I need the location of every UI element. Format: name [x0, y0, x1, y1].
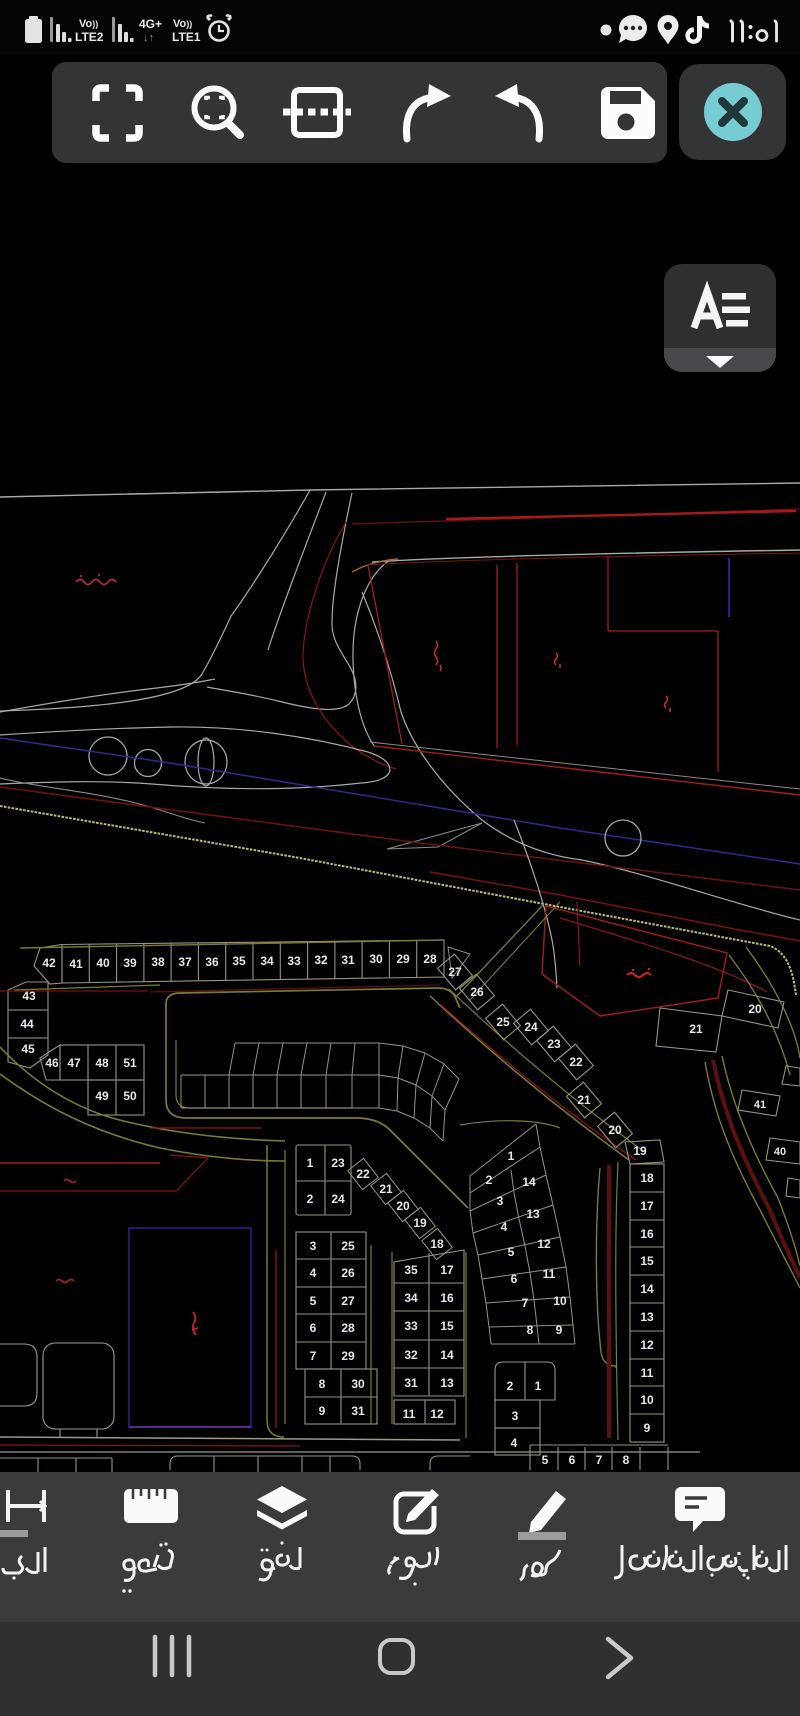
svg-text:7: 7 [596, 1453, 603, 1467]
svg-text:30: 30 [369, 952, 383, 966]
svg-text:4G+: 4G+ [139, 17, 162, 31]
svg-text:18: 18 [640, 1171, 654, 1185]
svg-text:17: 17 [640, 1199, 654, 1213]
svg-text:14: 14 [640, 1282, 654, 1296]
svg-text:20: 20 [396, 1199, 410, 1213]
svg-text:10: 10 [640, 1393, 654, 1407]
svg-text:39: 39 [123, 956, 137, 970]
svg-text:32: 32 [314, 953, 328, 967]
svg-text:7: 7 [522, 1296, 529, 1310]
svg-text:8: 8 [623, 1453, 630, 1467]
svg-text:31: 31 [351, 1404, 365, 1418]
svg-text:10: 10 [553, 1294, 567, 1308]
svg-text:↓↑: ↓↑ [143, 32, 154, 44]
svg-text:17: 17 [440, 1263, 454, 1277]
svg-text:40: 40 [774, 1146, 786, 1158]
svg-text:12: 12 [537, 1237, 551, 1251]
svg-text:28: 28 [423, 952, 437, 966]
svg-text:51: 51 [123, 1056, 137, 1070]
svg-text:29: 29 [341, 1349, 355, 1363]
svg-text:38: 38 [151, 955, 165, 969]
svg-text:16: 16 [640, 1227, 654, 1241]
svg-text:41: 41 [69, 957, 83, 971]
svg-text:9: 9 [644, 1421, 651, 1435]
svg-text:5: 5 [542, 1453, 549, 1467]
svg-text:12: 12 [640, 1338, 654, 1352]
svg-text:Vo)): Vo)) [79, 18, 98, 30]
svg-text:28: 28 [341, 1321, 355, 1335]
svg-text:6: 6 [569, 1453, 576, 1467]
svg-text:27: 27 [448, 965, 462, 979]
svg-text:26: 26 [341, 1266, 355, 1280]
svg-text:35: 35 [404, 1263, 418, 1277]
svg-text:35: 35 [232, 954, 246, 968]
svg-text:8: 8 [527, 1323, 534, 1337]
svg-text:32: 32 [404, 1348, 418, 1362]
svg-text:29: 29 [396, 952, 410, 966]
svg-text:24: 24 [331, 1192, 345, 1206]
svg-text:2: 2 [307, 1192, 314, 1206]
svg-text:11: 11 [403, 1407, 416, 1421]
svg-text:30: 30 [351, 1377, 365, 1391]
svg-text:3: 3 [497, 1194, 504, 1208]
svg-text:22: 22 [569, 1055, 583, 1069]
svg-text:4: 4 [501, 1220, 508, 1234]
svg-text:37: 37 [178, 955, 192, 969]
svg-text:9: 9 [319, 1404, 326, 1418]
svg-text:23: 23 [331, 1156, 345, 1170]
svg-text:21: 21 [577, 1093, 591, 1107]
svg-text:4: 4 [310, 1266, 317, 1280]
svg-text:13: 13 [440, 1376, 454, 1390]
svg-text:19: 19 [633, 1144, 647, 1158]
svg-text:33: 33 [287, 954, 301, 968]
svg-text:31: 31 [404, 1376, 418, 1390]
svg-text:46: 46 [45, 1056, 59, 1070]
svg-text:16: 16 [440, 1291, 454, 1305]
svg-text:7: 7 [310, 1349, 317, 1363]
svg-text:5: 5 [508, 1245, 515, 1259]
svg-text:42: 42 [42, 956, 56, 970]
svg-text:19: 19 [413, 1216, 427, 1230]
svg-text:45: 45 [21, 1042, 35, 1056]
svg-text:23: 23 [547, 1037, 561, 1051]
svg-text:25: 25 [496, 1015, 510, 1029]
svg-text:41: 41 [754, 1099, 766, 1111]
svg-text:18: 18 [430, 1237, 444, 1251]
svg-text:26: 26 [470, 985, 484, 999]
svg-text:LTE2: LTE2 [75, 30, 104, 44]
svg-text:11: 11 [641, 1366, 654, 1380]
svg-text:3: 3 [512, 1409, 519, 1423]
svg-text:9: 9 [556, 1323, 563, 1337]
svg-text:1: 1 [508, 1149, 515, 1163]
svg-text:LTE1: LTE1 [172, 30, 201, 44]
svg-text:14: 14 [522, 1175, 536, 1189]
svg-text:50: 50 [123, 1089, 137, 1103]
svg-text:33: 33 [404, 1319, 418, 1333]
svg-text:34: 34 [404, 1291, 418, 1305]
svg-text:6: 6 [511, 1272, 518, 1286]
svg-text:49: 49 [95, 1089, 109, 1103]
svg-text:4: 4 [511, 1436, 518, 1450]
svg-text:15: 15 [640, 1254, 654, 1268]
svg-text:Vo)): Vo)) [173, 18, 192, 30]
svg-text:1: 1 [307, 1156, 314, 1170]
svg-text:44: 44 [20, 1017, 34, 1031]
svg-text:3: 3 [310, 1239, 317, 1253]
svg-text:2: 2 [486, 1173, 493, 1187]
svg-text:40: 40 [96, 956, 110, 970]
svg-text:48: 48 [95, 1056, 109, 1070]
svg-text:24: 24 [524, 1020, 538, 1034]
svg-text:8: 8 [319, 1377, 326, 1391]
svg-text:25: 25 [341, 1239, 355, 1253]
svg-text:20: 20 [608, 1123, 622, 1137]
svg-text:21: 21 [689, 1022, 703, 1036]
svg-text:11: 11 [543, 1267, 556, 1281]
svg-text:47: 47 [67, 1056, 81, 1070]
svg-text:2: 2 [507, 1379, 514, 1393]
svg-text:14: 14 [440, 1348, 454, 1362]
svg-text:12: 12 [430, 1407, 444, 1421]
svg-text:13: 13 [640, 1310, 654, 1324]
svg-text:6: 6 [310, 1321, 317, 1335]
svg-text:5: 5 [310, 1294, 317, 1308]
svg-text:27: 27 [341, 1294, 355, 1308]
svg-text:34: 34 [260, 954, 274, 968]
svg-text:1: 1 [535, 1379, 542, 1393]
svg-text:31: 31 [341, 953, 355, 967]
svg-text:13: 13 [526, 1207, 540, 1221]
svg-text:20: 20 [748, 1002, 762, 1016]
svg-text:21: 21 [379, 1182, 393, 1196]
svg-text:15: 15 [440, 1319, 454, 1333]
svg-text:36: 36 [205, 955, 219, 969]
svg-text:22: 22 [356, 1167, 370, 1181]
